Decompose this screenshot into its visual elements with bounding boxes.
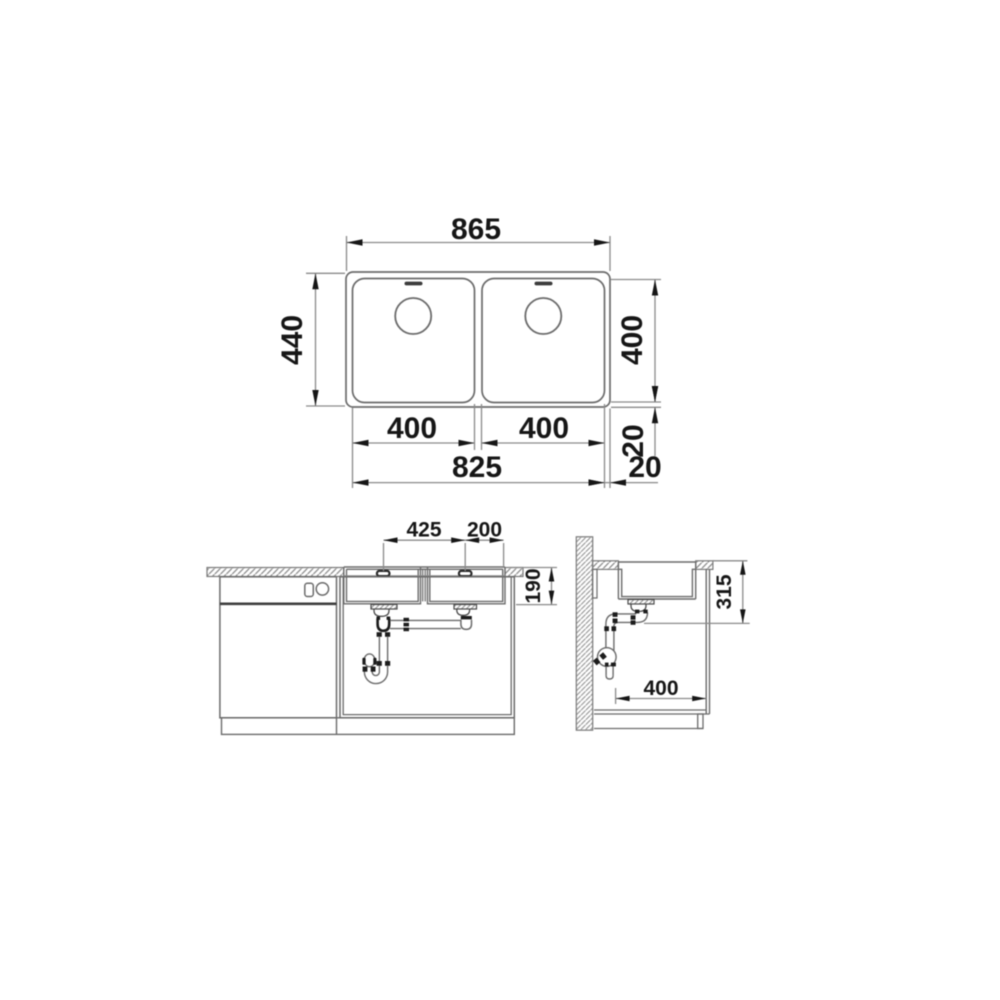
svg-text:315: 315: [713, 574, 736, 609]
svg-text:200: 200: [467, 519, 502, 542]
svg-text:400: 400: [387, 412, 437, 445]
svg-text:400: 400: [519, 412, 569, 445]
svg-text:400: 400: [643, 677, 678, 700]
svg-text:425: 425: [406, 519, 441, 542]
svg-text:400: 400: [616, 315, 649, 365]
svg-text:190: 190: [522, 568, 545, 603]
svg-text:440: 440: [276, 315, 309, 365]
svg-text:20: 20: [628, 451, 661, 484]
svg-text:865: 865: [451, 213, 501, 246]
svg-text:825: 825: [452, 451, 502, 484]
